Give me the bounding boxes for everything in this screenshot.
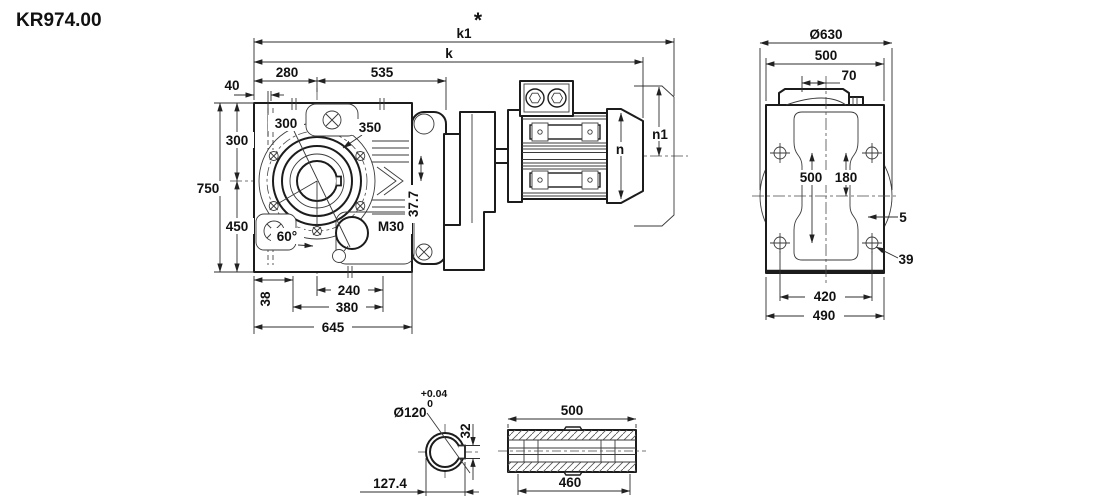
dim-120-label: Ø120 — [393, 405, 426, 420]
dim-450-label: 450 — [226, 219, 249, 234]
dim-1274-label: 127.4 — [373, 476, 407, 491]
dim-240-label: 240 — [338, 283, 361, 298]
terminal-box — [520, 81, 573, 116]
dim-380-label: 380 — [336, 300, 359, 315]
shaft-section-view: Ø120 +0.04 0 32 127.4 — [360, 388, 480, 496]
dim-60deg-label: 60° — [277, 229, 297, 244]
dim-k1-label: k1 — [456, 26, 472, 41]
dim-500-top-label: 500 — [815, 48, 838, 63]
dim-645-label: 645 — [322, 320, 345, 335]
tolerance-upper: +0.04 — [421, 388, 448, 400]
dim-490-label: 490 — [813, 308, 836, 323]
dim-40-label: 40 — [224, 78, 239, 93]
dim-38-label: 38 — [258, 291, 273, 307]
shaft-cover — [779, 89, 863, 105]
dim-39-label: 39 — [898, 252, 913, 267]
rear-view: Ø630 500 70 500 180 5 39 420 490 — [752, 27, 914, 323]
dim-k-label: k — [445, 46, 453, 61]
page-title: KR974.00 — [16, 10, 102, 31]
dim-500-inner-label: 500 — [800, 170, 823, 185]
motor-flange — [508, 110, 522, 202]
dim-280-label: 280 — [276, 65, 299, 80]
dim-shaft-500-label: 500 — [561, 403, 584, 418]
technical-drawing: KR974.00 — [0, 0, 1100, 503]
shaft-collar-top — [564, 427, 582, 430]
dim-5-label: 5 — [899, 210, 907, 225]
plug-m30-label: M30 — [378, 219, 404, 234]
drawing-page: KR974.00 — [0, 0, 1100, 503]
dim-750-label: 750 — [197, 181, 220, 196]
dim-630-label: Ø630 — [809, 27, 842, 42]
dim-300-left-label: 300 — [226, 133, 249, 148]
bore-keyway — [458, 446, 465, 459]
dim-flange-300-label: 300 — [275, 116, 298, 131]
front-view-motor — [495, 81, 674, 226]
dim-180-label: 180 — [835, 170, 858, 185]
coupling — [495, 149, 508, 163]
dim-n1-label: n1 — [652, 127, 668, 142]
dim-420-label: 420 — [814, 289, 837, 304]
dim-377-label: 37.7 — [406, 191, 421, 217]
dim-shaft-460-label: 460 — [559, 475, 582, 490]
tolerance-lower: 0 — [427, 398, 433, 410]
shaft-side-view: 500 460 — [498, 403, 646, 495]
dim-70-label: 70 — [841, 68, 856, 83]
footnote-star: * — [474, 9, 483, 32]
dim-n-label: n — [616, 142, 624, 157]
dim-32-label: 32 — [458, 423, 473, 438]
dim-535-label: 535 — [371, 65, 394, 80]
hollow-shaft-keyway — [336, 177, 341, 186]
input-neck — [444, 134, 460, 225]
dim-flange-350-label: 350 — [359, 120, 382, 135]
